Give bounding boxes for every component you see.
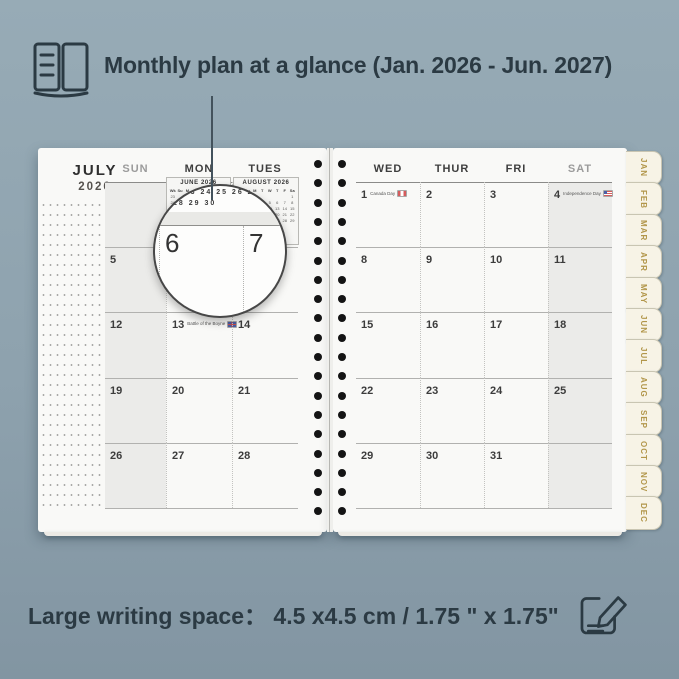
- binding-hole: [314, 411, 322, 419]
- calendar-cell: 11: [548, 247, 612, 312]
- open-book-icon: [28, 38, 94, 100]
- month-tab-label: JAN: [639, 158, 648, 177]
- date-number: 20: [172, 385, 184, 397]
- holiday-label: Independence Day: [563, 191, 613, 196]
- callout-line: [211, 96, 213, 200]
- month-tab-nov: NOV: [626, 465, 662, 499]
- footer-caption: Large writing space： 4.5 x4.5 cm / 1.75 …: [28, 597, 559, 631]
- day-header-sat: SAT: [548, 163, 612, 177]
- calendar-cell: 31: [484, 443, 548, 508]
- date-number: 11: [554, 254, 566, 266]
- lens-date-6: 6: [165, 228, 179, 259]
- month-tab-label: MAR: [639, 220, 648, 241]
- pencil-edit-icon: [572, 583, 630, 643]
- calendar-cell: 4Independence Day: [548, 182, 612, 247]
- binding-hole: [314, 353, 322, 361]
- date-number: 19: [110, 385, 122, 397]
- date-number: 28: [238, 450, 250, 462]
- date-number: 4: [554, 189, 560, 201]
- calendar-cell: 17: [484, 312, 548, 377]
- dot-grid-notes-area: [40, 200, 104, 512]
- holiday-label: Canada Day: [370, 191, 407, 196]
- lens-cell-border: [159, 226, 160, 318]
- footer-label: Large writing space：: [28, 603, 267, 629]
- month-tab-sep: SEP: [626, 402, 662, 436]
- month-tab-label: DEC: [639, 503, 648, 523]
- calendar-cell: 8: [356, 247, 420, 312]
- binding-hole: [338, 392, 346, 400]
- page-seam: [327, 148, 333, 532]
- calendar-cell: 27: [166, 443, 232, 508]
- day-header-mon: MON: [166, 163, 232, 177]
- magnifier-lens: 22 23 24 25 26 2728 29 3067: [153, 184, 287, 318]
- binding-hole: [338, 353, 346, 361]
- date-number: 1: [361, 189, 367, 201]
- month-tab-label: SEP: [639, 410, 648, 429]
- calendar-cell: 19: [105, 378, 166, 443]
- date-number: 31: [490, 450, 502, 462]
- binding-hole: [338, 450, 346, 458]
- grid-row-line: [356, 508, 612, 509]
- binding-hole: [314, 218, 322, 226]
- calendar-cell: 26: [105, 443, 166, 508]
- month-tab-dec: DEC: [626, 496, 662, 530]
- month-tab-label: FEB: [639, 190, 648, 209]
- day-header-wed: WED: [356, 163, 420, 177]
- binding-hole: [314, 257, 322, 265]
- month-tab-oct: OCT: [626, 434, 662, 468]
- grid-row-line: [105, 508, 298, 509]
- binding-hole: [314, 276, 322, 284]
- day-header-thur: THUR: [420, 163, 484, 177]
- lens-mini-row: 22 23 24 25 26 27: [169, 189, 259, 196]
- calendar-cell: 20: [166, 378, 232, 443]
- date-number: 13: [172, 319, 184, 331]
- month-tab-feb: FEB: [626, 182, 662, 216]
- month-tab-label: AUG: [639, 377, 648, 398]
- calendar-cell: 21: [232, 378, 298, 443]
- binding-hole: [338, 257, 346, 265]
- calendar-cell: 14: [232, 312, 298, 377]
- holiday-label: Battle of the Boyne: [187, 321, 237, 326]
- calendar-cell: 28: [232, 443, 298, 508]
- calendar-cell: 1Canada Day: [356, 182, 420, 247]
- page-stack-edge: [44, 532, 322, 536]
- month-tab-label: MAY: [639, 284, 648, 304]
- month-tab-jul: JUL: [626, 339, 662, 373]
- date-number: 27: [172, 450, 184, 462]
- calendar-cell: 30: [420, 443, 484, 508]
- month-tab-jun: JUN: [626, 308, 662, 342]
- date-number: 17: [490, 319, 502, 331]
- date-number: 26: [110, 450, 122, 462]
- day-header-fri: FRI: [484, 163, 548, 177]
- calendar-cell: 29: [356, 443, 420, 508]
- flag-us-icon: [603, 190, 613, 197]
- calendar-cell: 25: [548, 378, 612, 443]
- lens-minical-edge: [155, 212, 287, 226]
- month-tab-jan: JAN: [626, 151, 662, 185]
- calendar-cell: 18: [548, 312, 612, 377]
- lens-date-7: 7: [249, 228, 263, 259]
- binding-hole: [338, 411, 346, 419]
- calendar-cell: 16: [420, 312, 484, 377]
- calendar-cell: 9: [420, 247, 484, 312]
- date-number: 15: [361, 319, 373, 331]
- binding-hole: [338, 160, 346, 168]
- date-number: 25: [554, 385, 566, 397]
- month-tab-label: APR: [639, 252, 648, 272]
- calendar-cell: 2: [420, 182, 484, 247]
- page-title: Monthly plan at a glance (Jan. 2026 - Ju…: [104, 52, 612, 79]
- planner-product-image: Monthly plan at a glance (Jan. 2026 - Ju…: [0, 0, 679, 679]
- calendar-cell: 24: [484, 378, 548, 443]
- date-number: 3: [490, 189, 496, 201]
- month-tab-mar: MAR: [626, 214, 662, 248]
- binding-hole: [338, 218, 346, 226]
- page-stack-edge: [338, 532, 622, 536]
- date-number: 12: [110, 319, 122, 331]
- date-number: 2: [426, 189, 432, 201]
- calendar-cell: 13Battle of the Boyne: [166, 312, 232, 377]
- binding-hole: [314, 199, 322, 207]
- date-number: 24: [490, 385, 502, 397]
- calendar-cell: 3: [484, 182, 548, 247]
- footer-value: 4.5 x4.5 cm / 1.75 " x 1.75": [273, 603, 558, 629]
- day-header-sun: SUN: [105, 163, 166, 177]
- calendar-cell: 23: [420, 378, 484, 443]
- date-number: 5: [110, 254, 116, 266]
- date-number: 9: [426, 254, 432, 266]
- binding-hole: [314, 450, 322, 458]
- month-tab-label: JUL: [639, 347, 648, 365]
- date-number: 18: [554, 319, 566, 331]
- month-tab-aug: AUG: [626, 371, 662, 405]
- flag-ca-icon: [397, 190, 407, 197]
- binding-hole: [338, 469, 346, 477]
- month-tab-label: OCT: [639, 441, 648, 461]
- calendar-cell: 15: [356, 312, 420, 377]
- month-tab-label: JUN: [639, 315, 648, 334]
- date-number: 8: [361, 254, 367, 266]
- lens-mini-row: 28 29 30: [173, 200, 216, 207]
- binding-hole: [338, 199, 346, 207]
- date-number: 14: [238, 319, 250, 331]
- binding-hole: [338, 334, 346, 342]
- binding-hole: [314, 334, 322, 342]
- date-number: 16: [426, 319, 438, 331]
- date-number: 23: [426, 385, 438, 397]
- mini-calendar-title: AUGUST 2026: [236, 180, 296, 186]
- month-tab-label: NOV: [639, 472, 648, 492]
- binding-hole: [338, 276, 346, 284]
- day-header-tues: TUES: [232, 163, 298, 177]
- date-number: 22: [361, 385, 373, 397]
- month-tab-may: MAY: [626, 277, 662, 311]
- binding-hole: [314, 469, 322, 477]
- calendar-cell: 22: [356, 378, 420, 443]
- calendar-cell: 12: [105, 312, 166, 377]
- binding-hole: [314, 392, 322, 400]
- calendar-cell: [548, 443, 612, 508]
- date-number: 30: [426, 450, 438, 462]
- month-tab-apr: APR: [626, 245, 662, 279]
- date-number: 21: [238, 385, 250, 397]
- date-number: 10: [490, 254, 502, 266]
- binding-hole: [314, 160, 322, 168]
- calendar-cell: 10: [484, 247, 548, 312]
- lens-cell-border: [243, 226, 244, 318]
- date-number: 29: [361, 450, 373, 462]
